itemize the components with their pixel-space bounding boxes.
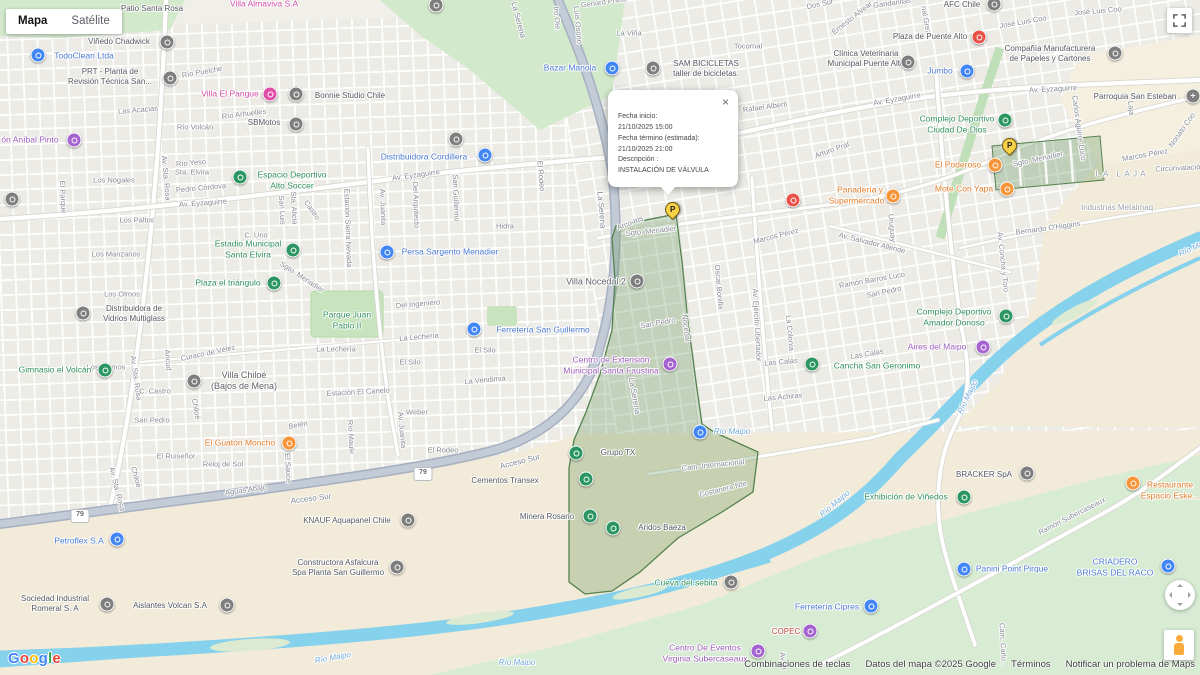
marker-metro-puente-alto[interactable] [972,30,987,45]
google-logo: Google [8,650,61,667]
marker-gimnasio-volcan[interactable] [98,363,113,378]
map-data-text: Datos del mapa ©2025 Google [865,659,996,670]
marker-panini-point[interactable] [957,562,972,577]
google-logo-letter: o [20,650,29,667]
marker-ferreteria-cipres[interactable] [864,599,879,614]
popup-field-start-label: Fecha inicio: [618,112,728,123]
marker-left-edge-poi[interactable] [5,192,20,207]
marker-knauf-aquapanel[interactable] [401,513,416,528]
marker-hospital[interactable] [786,193,801,208]
marker-panaderia-supermercado[interactable] [886,189,901,204]
marker-villa-el-pangue[interactable] [263,87,278,102]
marker-todoclean[interactable] [31,48,46,63]
marker-grupo-tx[interactable] [569,446,584,461]
terms-link[interactable]: Términos [1011,659,1051,670]
marker-vinedo-chadwick[interactable] [160,35,175,50]
marker-restaurante-espacio-eske[interactable] [1126,476,1141,491]
popup-field-end-label: Fecha término (estimada): [618,134,728,145]
marker-villa-chiloe[interactable] [187,374,202,389]
marker-compania-papeles[interactable] [1108,46,1123,61]
google-logo-letter: o [29,650,38,667]
marker-plaza-triangulo[interactable] [267,276,282,291]
pegman-icon [1176,635,1183,642]
marker-persa-menadier[interactable] [380,245,395,260]
map-markers-layer: +PP [0,0,1200,675]
marker-afc-chile[interactable] [987,0,1002,12]
marker-ferreteria-san-guillermo[interactable] [467,322,482,337]
marker-espacio-deportivo[interactable] [233,170,248,185]
marker-cueva-del-sebita[interactable] [724,575,739,590]
marker-ciudad-de-dios[interactable] [998,113,1013,128]
marker-virginia-subercaseaux[interactable] [751,644,766,659]
marker-aires-del-maipo[interactable] [976,340,991,355]
marker-aislantes-volcan[interactable] [220,598,235,613]
report-problem-link[interactable]: Notificar un problema de Maps [1066,659,1195,670]
marker-amador-donoso[interactable] [999,309,1014,324]
marker-romeral[interactable] [100,597,115,612]
marker-bracker-spa[interactable] [1020,466,1035,481]
marker-clinica-veterinaria[interactable] [901,55,916,70]
attribution-bar: Combinaciones de teclas Datos del mapa ©… [744,659,1195,670]
google-logo-letter: G [8,650,20,667]
marker-constructora-asfalcura[interactable] [390,560,405,575]
pegman-control[interactable] [1164,630,1194,660]
marker-exhibicion-vinedos[interactable] [957,490,972,505]
info-window-tail [660,186,676,195]
marker-cordillera-shop[interactable] [478,148,493,163]
marker-rio-maipo-poi[interactable] [693,425,708,440]
marker-santa-faustina[interactable] [663,357,678,372]
marker-anibal-pinto[interactable] [67,133,82,148]
marker-jumbo[interactable] [960,64,975,79]
fullscreen-icon [1172,13,1187,28]
close-icon[interactable]: × [722,96,729,108]
marker-parroquia-san-esteban[interactable]: + [1186,89,1200,104]
marker-cancha-san-geronimo[interactable] [805,357,820,372]
marker-petroflex[interactable] [110,532,125,547]
map-type-map-button[interactable]: Mapa [6,9,59,34]
popup-field-end-value: 21/10/2025 21:00 [618,145,728,156]
marker-bonnie-studio[interactable] [289,87,304,102]
pan-left-icon [1169,592,1172,598]
marker-sbmotos[interactable] [289,117,304,132]
popup-field-description-label: Descripción : [618,155,728,166]
google-logo-letter: e [52,650,61,667]
map-type-control: Mapa Satélite [6,9,122,34]
marker-guaton-moncho[interactable] [282,436,297,451]
marker-el-poderoso[interactable] [988,158,1003,173]
google-logo-letter: g [39,650,48,667]
marker-villa-nocedal-2[interactable] [630,274,645,289]
marker-sam-bicicletas[interactable] [646,61,661,76]
marker-criadero-brisas[interactable] [1161,559,1176,574]
map-type-satellite-button[interactable]: Satélite [59,9,121,34]
marker-distribuidora-cordillera[interactable] [449,132,464,147]
keyboard-shortcuts-link[interactable]: Combinaciones de teclas [744,659,850,670]
marker-aridos-baeza[interactable] [606,521,621,536]
marker-cementos-transex[interactable] [579,472,594,487]
marker-estadio-santa-elvira[interactable] [286,243,301,258]
marker-copec[interactable] [803,624,818,639]
marker-mote-con-yapa[interactable] [1000,182,1015,197]
pan-up-icon [1177,584,1183,587]
marker-prt-revision-tecnica[interactable] [163,71,178,86]
work-order-info-window: × Fecha inicio: 21/10/2025 15:00 Fecha t… [608,90,738,187]
marker-bazar-manola[interactable] [605,61,620,76]
map-canvas[interactable]: Patio Santa RosaVilla Almaviva S.AViñedo… [0,0,1200,675]
marker-minera-rosario[interactable] [583,509,598,524]
fullscreen-button[interactable] [1167,8,1192,33]
marker-vidrios-multiglass[interactable] [76,306,91,321]
pan-right-icon [1188,592,1191,598]
pan-control[interactable] [1165,580,1195,610]
popup-field-start-value: 21/10/2025 15:00 [618,123,728,134]
marker-patio-santa-rosa[interactable] [429,0,444,13]
popup-field-description-value: INSTALACIÓN DE VÁLVULA [618,166,728,177]
pan-down-icon [1177,603,1183,606]
